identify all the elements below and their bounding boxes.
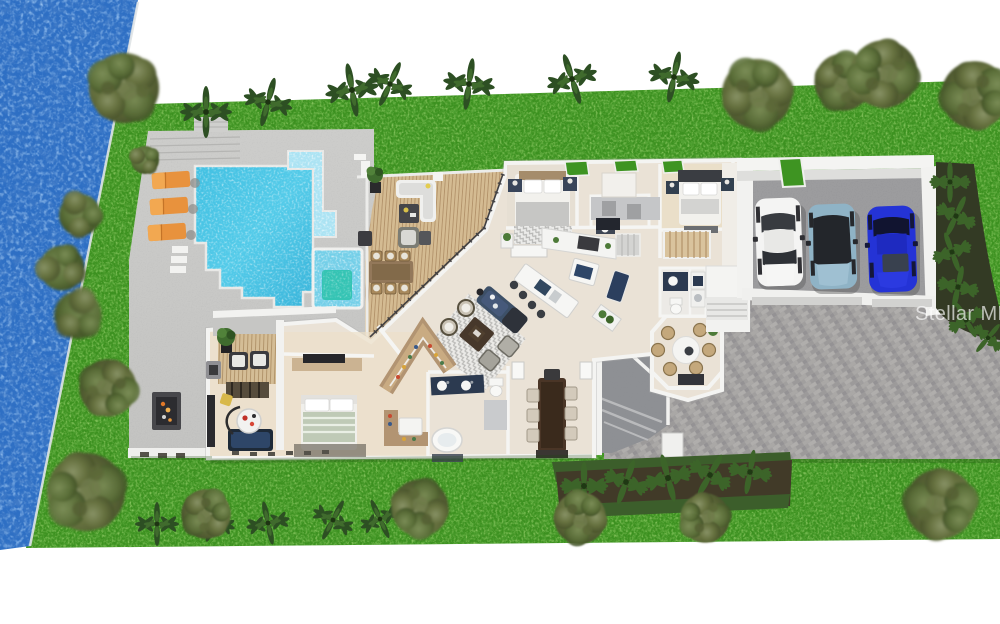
svg-text:Stellar MLS: Stellar MLS — [915, 303, 1000, 325]
